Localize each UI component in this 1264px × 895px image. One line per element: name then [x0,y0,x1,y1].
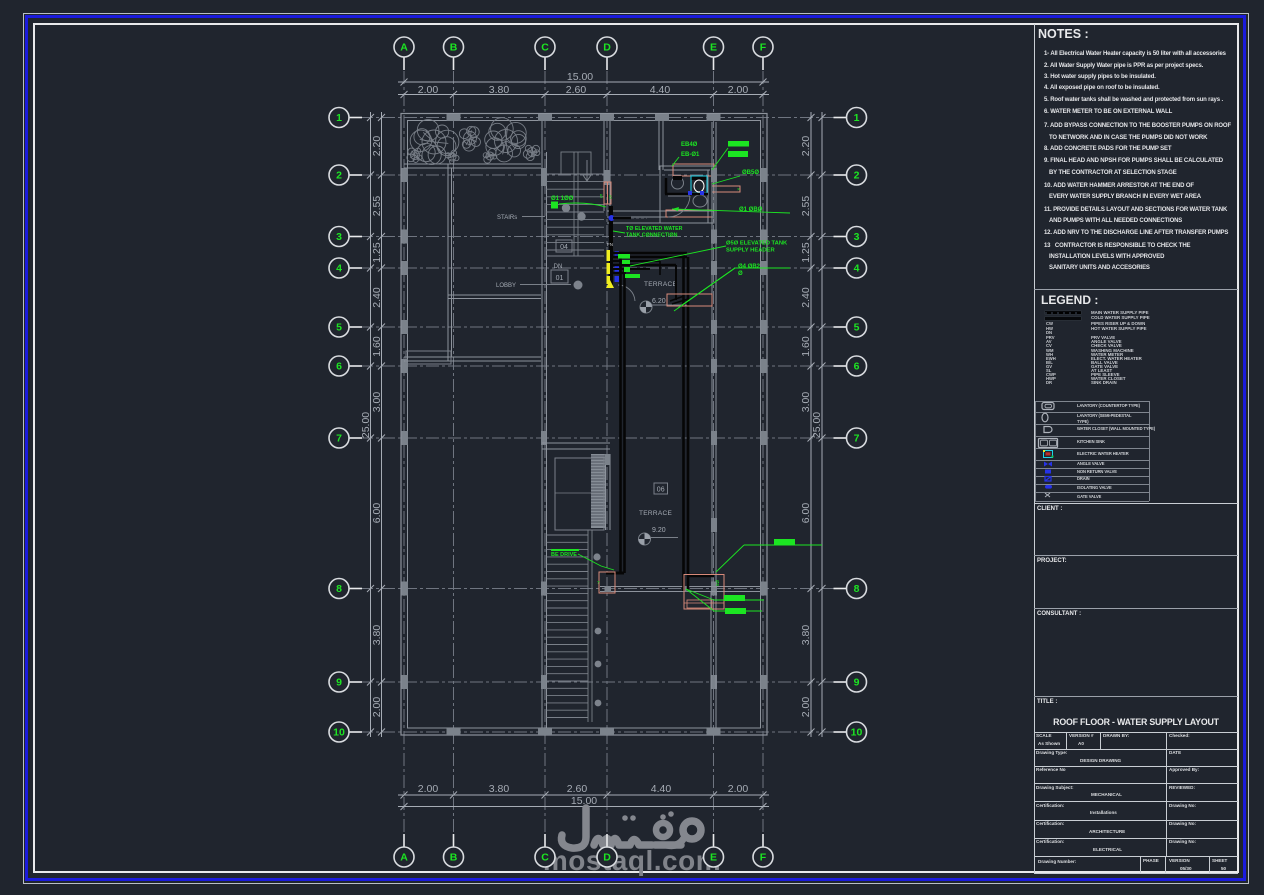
svg-text:1.25: 1.25 [800,242,812,263]
svg-text:4.40: 4.40 [650,84,671,96]
svg-text:10: 10 [851,727,863,739]
svg-text:2.55: 2.55 [800,196,812,217]
svg-text:25.00: 25.00 [811,412,823,438]
svg-text:1.60: 1.60 [371,336,383,357]
svg-text:A: A [400,42,408,54]
svg-text:3.80: 3.80 [800,625,812,646]
svg-text:3: 3 [336,231,342,243]
svg-text:4.40: 4.40 [651,783,672,795]
svg-text:10: 10 [333,727,345,739]
svg-text:3: 3 [854,231,860,243]
svg-text:3.80: 3.80 [489,783,510,795]
svg-text:1: 1 [854,112,860,124]
svg-text:2: 2 [854,170,860,182]
svg-text:Ø: Ø [738,271,743,277]
svg-text:8: 8 [336,583,342,595]
svg-text:2.40: 2.40 [371,287,383,308]
svg-text:1.25: 1.25 [371,242,383,263]
svg-text:2.40: 2.40 [800,287,812,308]
svg-text:5: 5 [609,195,612,201]
svg-text:7: 7 [336,433,342,445]
svg-text:1: 1 [336,112,342,124]
svg-text:5: 5 [854,322,860,334]
svg-text:7: 7 [597,580,600,585]
svg-text:2.60: 2.60 [566,84,587,96]
svg-text:6.20: 6.20 [652,298,666,305]
svg-text:9: 9 [854,677,860,689]
svg-text:TERRACE: TERRACE [639,510,673,517]
svg-text:5Ø: 5Ø [715,579,720,586]
svg-text:E: E [710,852,717,864]
svg-text:2.00: 2.00 [418,783,439,795]
svg-text:2.55: 2.55 [371,196,383,217]
svg-text:TØ ELEVATED WATER: TØ ELEVATED WATER [626,226,683,232]
svg-text:25.00: 25.00 [360,412,372,438]
svg-text:SUPPLY HEADER: SUPPLY HEADER [726,248,775,254]
svg-text:D: D [603,852,611,864]
svg-text:FN: FN [607,242,613,247]
svg-text:STAIRs: STAIRs [497,215,517,221]
svg-text:LOBBY: LOBBY [496,283,516,289]
svg-text:2.00: 2.00 [418,84,439,96]
svg-text:1.60: 1.60 [800,336,812,357]
svg-text:E: E [710,42,717,54]
svg-text:9: 9 [336,677,342,689]
svg-text:2.60: 2.60 [567,783,588,795]
svg-text:3.00: 3.00 [371,392,383,413]
svg-text:2: 2 [336,170,342,182]
svg-text:4: 4 [336,263,342,275]
svg-text:15.00: 15.00 [567,71,593,83]
svg-text:×: × [737,187,740,193]
svg-text:6: 6 [336,361,342,373]
svg-text:TANK CØNNECTIØN: TANK CØNNECTIØN [626,233,678,239]
svg-text:D: D [603,42,611,54]
svg-text:Ø4 ØB2: Ø4 ØB2 [738,264,761,270]
svg-text:3.80: 3.80 [489,84,510,96]
svg-text:3.80: 3.80 [371,625,383,646]
svg-text:04: 04 [560,244,568,251]
svg-text:2.00: 2.00 [371,697,383,718]
svg-text:F: F [760,42,767,54]
svg-text:6: 6 [854,361,860,373]
svg-text:DN: DN [554,264,563,270]
svg-text:F: F [760,852,767,864]
svg-text:7: 7 [854,433,860,445]
svg-text:01: 01 [556,275,564,282]
svg-text:ØB5Ø: ØB5Ø [742,170,759,176]
svg-text:mostaql.com: mostaql.com [543,845,721,876]
svg-text:8: 8 [854,583,860,595]
svg-text:EB-Ø1: EB-Ø1 [681,152,700,158]
svg-text:B: B [450,852,458,864]
svg-text:BE DRIVE: BE DRIVE [551,552,577,558]
svg-text:9.20: 9.20 [652,527,666,534]
svg-text:Ø5Ø ELEVATED TANK: Ø5Ø ELEVATED TANK [726,241,788,247]
svg-text:TERRACE: TERRACE [644,281,678,288]
svg-text:B: B [450,42,458,54]
svg-text:A: A [400,852,408,864]
svg-text:6.00: 6.00 [371,503,383,524]
svg-text:C: C [541,852,549,864]
svg-text:3.00: 3.00 [800,392,812,413]
svg-text:2.00: 2.00 [728,84,749,96]
svg-text:5: 5 [336,322,342,334]
svg-text:Ø1 1ØØ: Ø1 1ØØ [551,196,574,202]
svg-text:2.00: 2.00 [800,697,812,718]
svg-text:2.00: 2.00 [728,783,749,795]
svg-text:06: 06 [657,487,665,494]
svg-text:2.20: 2.20 [371,136,383,157]
svg-text:5: 5 [600,194,603,200]
svg-text:2.20: 2.20 [800,136,812,157]
svg-text:C: C [541,42,549,54]
svg-text:6.00: 6.00 [800,503,812,524]
svg-text:EB4Ø: EB4Ø [681,142,698,148]
svg-text:4: 4 [854,263,860,275]
